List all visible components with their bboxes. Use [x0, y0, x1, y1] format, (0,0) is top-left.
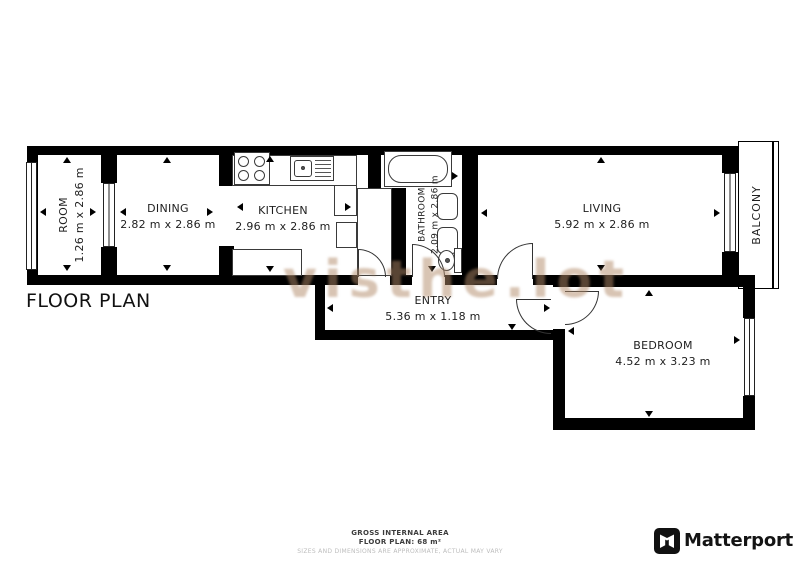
room-name: KITCHEN [223, 203, 343, 219]
room-dims: 5.36 m x 1.18 m [363, 309, 503, 325]
dimension-arrow-bedroom-top [645, 290, 653, 296]
dimension-arrow-room-right [90, 208, 96, 216]
floor-plan-canvas: ROOM 1.26 m x 2.86 m DINING 2.82 m x 2.8… [0, 0, 800, 566]
sliding-door-living-balcony [724, 173, 736, 252]
room-name: LIVING [532, 201, 672, 217]
page-title: FLOOR PLAN [26, 290, 151, 312]
room-label-dining: DINING 2.82 m x 2.86 m [108, 201, 228, 233]
dimension-arrow-bathroom-left [374, 172, 380, 180]
window-room-left [26, 162, 37, 270]
window-bedroom-right [744, 318, 755, 396]
wall-kitchen-bath-stub [368, 146, 381, 188]
wall-bedroom-right-top [743, 287, 755, 318]
matterport-logo-text: Matterport [684, 530, 793, 551]
dimension-arrow-dining-top [163, 157, 171, 163]
wall-room-dining-top [101, 155, 117, 183]
room-label-bedroom: BEDROOM 4.52 m x 3.23 m [593, 338, 733, 370]
stove-burner [254, 170, 265, 181]
room-name: BALCONY [749, 155, 765, 275]
dimension-arrow-bedroom-bottom [645, 411, 653, 417]
balcony-railing-inner [772, 141, 774, 289]
room-name: DINING [108, 201, 228, 217]
room-dims: 2.82 m x 2.86 m [108, 217, 228, 233]
stove [234, 152, 270, 185]
dimension-arrow-kitchen-right [345, 203, 351, 211]
wall-bedroom-bottom [553, 418, 755, 430]
stove-burner [238, 156, 249, 167]
room-label-living: LIVING 5.92 m x 2.86 m [532, 201, 672, 233]
dimension-arrow-room-left [40, 208, 46, 216]
wall-entry-bottom [315, 330, 565, 340]
watermark: visthe.lot [283, 250, 631, 310]
footer-floor-plan-area: FLOOR PLAN: 68 m² [250, 538, 550, 546]
room-dims: 1.26 m x 2.86 m [72, 155, 88, 275]
dimension-arrow-dining-bottom [163, 265, 171, 271]
room-dims: 2.96 m x 2.86 m [223, 219, 343, 235]
dimension-arrow-entry-bottom [508, 324, 516, 330]
dimension-arrow-kitchen-top [266, 156, 274, 162]
room-name: ROOM [56, 155, 72, 275]
wall-top [27, 146, 738, 155]
wall-bottom-left [27, 275, 325, 285]
room-label-kitchen: KITCHEN 2.96 m x 2.86 m [223, 203, 343, 235]
footer-disclaimer: SIZES AND DIMENSIONS ARE APPROXIMATE, AC… [250, 548, 550, 555]
dimension-arrow-kitchen-bottom [266, 266, 274, 272]
wall-living-balcony-top [722, 146, 738, 173]
room-label-balcony: BALCONY [749, 155, 765, 275]
sink-drainer [315, 160, 331, 177]
wall-room-dining-bottom [101, 247, 117, 275]
room-dims: 4.52 m x 3.23 m [593, 354, 733, 370]
kitchen-sink-unit [290, 156, 334, 181]
dimension-arrow-living-right [714, 209, 720, 217]
dimension-arrow-bedroom-right [734, 336, 740, 344]
dimension-arrow-living-left [481, 209, 487, 217]
room-label-room: ROOM 1.26 m x 2.86 m [56, 155, 88, 275]
dimension-arrow-bathroom-right [452, 172, 458, 180]
dimension-arrow-bedroom-left [568, 327, 574, 335]
matterport-logo-icon [654, 528, 680, 554]
room-dims: 5.92 m x 2.86 m [532, 217, 672, 233]
stove-burner [238, 170, 249, 181]
dimension-arrow-living-top [597, 157, 605, 163]
wall-bedroom-left [553, 329, 565, 430]
stove-burner [254, 156, 265, 167]
room-name: BEDROOM [593, 338, 733, 354]
sink-faucet [301, 166, 305, 170]
footer-gross-area-label: GROSS INTERNAL AREA [250, 529, 550, 537]
